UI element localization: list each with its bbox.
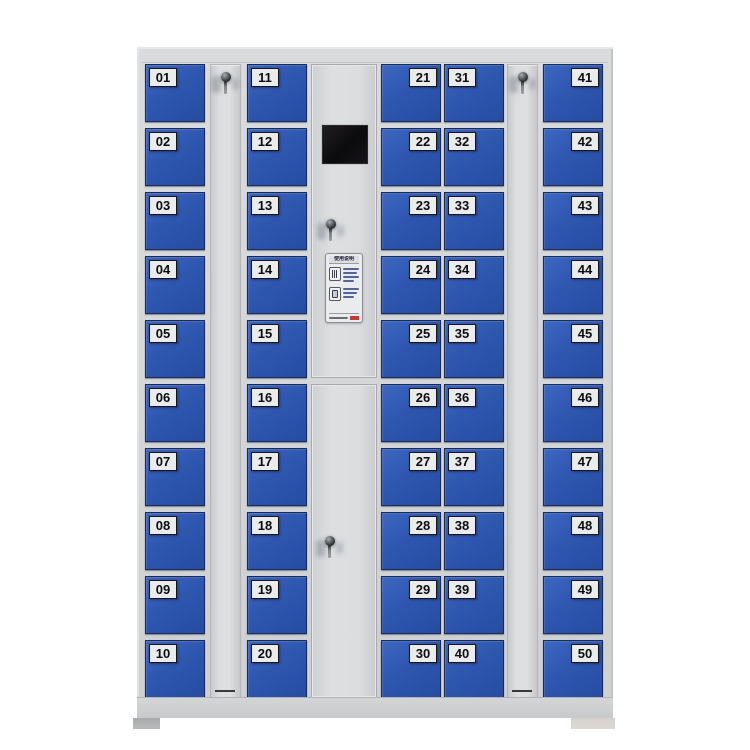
door-number-plate: 17 (251, 452, 279, 471)
door-number-plate: 26 (409, 388, 437, 407)
panel-seam (512, 690, 532, 692)
locker-door-44[interactable]: 44 (543, 256, 603, 314)
door-number-plate: 31 (448, 68, 476, 87)
door-number-plate: 24 (409, 260, 437, 279)
key-shadow (316, 540, 325, 557)
door-number-plate: 12 (251, 132, 279, 151)
product-photo: 0102030405060708091011121314151617181920… (0, 0, 750, 750)
locker-door-12[interactable]: 12 (247, 128, 307, 186)
locker-door-45[interactable]: 45 (543, 320, 603, 378)
instruction-label: 使用说明 (325, 253, 363, 323)
door-number-plate: 47 (571, 452, 599, 471)
door-number-plate: 48 (571, 516, 599, 535)
locker-door-17[interactable]: 17 (247, 448, 307, 506)
door-number-plate: 33 (448, 196, 476, 215)
locker-door-27[interactable]: 27 (381, 448, 441, 506)
side-panel-right-key-lock[interactable] (516, 72, 530, 98)
locker-door-33[interactable]: 33 (444, 192, 504, 250)
locker-door-28[interactable]: 28 (381, 512, 441, 570)
locker-door-24[interactable]: 24 (381, 256, 441, 314)
instruction-label-title: 使用说明 (329, 256, 359, 264)
locker-door-34[interactable]: 34 (444, 256, 504, 314)
door-number-plate: 13 (251, 196, 279, 215)
door-number-plate: 40 (448, 644, 476, 663)
control-screen[interactable] (322, 125, 368, 164)
locker-door-13[interactable]: 13 (247, 192, 307, 250)
card-reader-icon (329, 287, 341, 301)
control-column: 使用说明 (311, 64, 377, 698)
door-number-plate: 28 (409, 516, 437, 535)
locker-door-04[interactable]: 04 (145, 256, 205, 314)
cabinet-foot-right (571, 718, 615, 729)
barcode-icon (329, 267, 341, 281)
cabinet-base (137, 697, 613, 718)
master-key-lock-top[interactable] (324, 219, 338, 245)
col-4: 31323334353637383940 (444, 64, 504, 698)
locker-door-36[interactable]: 36 (444, 384, 504, 442)
locker-door-01[interactable]: 01 (145, 64, 205, 122)
key-shadow (529, 78, 536, 90)
locker-door-30[interactable]: 30 (381, 640, 441, 698)
key-shadow (212, 76, 221, 93)
door-number-plate: 32 (448, 132, 476, 151)
door-number-plate: 37 (448, 452, 476, 471)
control-panel: 使用说明 (311, 64, 377, 378)
locker-cabinet-columns: 0102030405060708091011121314151617181920… (137, 64, 603, 698)
door-number-plate: 04 (149, 260, 177, 279)
locker-door-50[interactable]: 50 (543, 640, 603, 698)
door-number-plate: 46 (571, 388, 599, 407)
door-number-plate: 27 (409, 452, 437, 471)
door-number-plate: 41 (571, 68, 599, 87)
instruction-text (343, 287, 359, 300)
locker-door-40[interactable]: 40 (444, 640, 504, 698)
instruction-step (329, 287, 359, 301)
door-number-plate: 15 (251, 324, 279, 343)
door-number-plate: 29 (409, 580, 437, 599)
locker-door-06[interactable]: 06 (145, 384, 205, 442)
locker-door-20[interactable]: 20 (247, 640, 307, 698)
locker-door-35[interactable]: 35 (444, 320, 504, 378)
locker-door-11[interactable]: 11 (247, 64, 307, 122)
door-number-plate: 21 (409, 68, 437, 87)
master-door[interactable] (311, 384, 377, 698)
cabinet-foot-left (133, 718, 160, 729)
door-number-plate: 20 (251, 644, 279, 663)
door-number-plate: 05 (149, 324, 177, 343)
key-shadow (337, 225, 344, 237)
master-key-lock-bottom[interactable] (323, 536, 337, 562)
door-number-plate: 01 (149, 68, 177, 87)
door-number-plate: 30 (409, 644, 437, 663)
locker-door-07[interactable]: 07 (145, 448, 205, 506)
key-icon (328, 545, 331, 558)
locker-door-08[interactable]: 08 (145, 512, 205, 570)
door-number-plate: 38 (448, 516, 476, 535)
key-icon (224, 81, 227, 94)
door-number-plate: 06 (149, 388, 177, 407)
locker-door-37[interactable]: 37 (444, 448, 504, 506)
door-number-plate: 39 (448, 580, 476, 599)
door-number-plate: 22 (409, 132, 437, 151)
door-number-plate: 02 (149, 132, 177, 151)
locker-door-46[interactable]: 46 (543, 384, 603, 442)
door-number-plate: 03 (149, 196, 177, 215)
door-number-plate: 34 (448, 260, 476, 279)
locker-door-48[interactable]: 48 (543, 512, 603, 570)
locker-door-15[interactable]: 15 (247, 320, 307, 378)
door-number-plate: 49 (571, 580, 599, 599)
key-shadow (336, 542, 343, 554)
door-number-plate: 25 (409, 324, 437, 343)
col-1: 01020304050607080910 (145, 64, 205, 698)
side-panel-left-key-lock[interactable] (219, 72, 233, 98)
instruction-text (343, 267, 359, 284)
door-number-plate: 43 (571, 196, 599, 215)
locker-door-03[interactable]: 03 (145, 192, 205, 250)
door-number-plate: 42 (571, 132, 599, 151)
door-number-plate: 50 (571, 644, 599, 663)
door-number-plate: 36 (448, 388, 476, 407)
door-number-plate: 19 (251, 580, 279, 599)
red-stamp (350, 316, 359, 320)
key-shadow (509, 76, 518, 93)
locker-door-43[interactable]: 43 (543, 192, 603, 250)
locker-door-47[interactable]: 47 (543, 448, 603, 506)
side-panel-left (210, 64, 241, 698)
col-3: 21222324252627282930 (381, 64, 441, 698)
door-number-plate: 07 (149, 452, 177, 471)
locker-door-21[interactable]: 21 (381, 64, 441, 122)
col-2: 11121314151617181920 (247, 64, 307, 698)
door-number-plate: 09 (149, 580, 177, 599)
locker-door-02[interactable]: 02 (145, 128, 205, 186)
door-number-plate: 23 (409, 196, 437, 215)
locker-door-19[interactable]: 19 (247, 576, 307, 634)
instruction-step (329, 267, 359, 284)
locker-door-29[interactable]: 29 (381, 576, 441, 634)
door-number-plate: 11 (251, 68, 279, 87)
door-number-plate: 10 (149, 644, 177, 663)
locker-door-41[interactable]: 41 (543, 64, 603, 122)
locker-door-49[interactable]: 49 (543, 576, 603, 634)
door-number-plate: 44 (571, 260, 599, 279)
col-5: 41424344454647484950 (543, 64, 603, 698)
key-shadow (317, 223, 326, 240)
locker-door-22[interactable]: 22 (381, 128, 441, 186)
locker-door-18[interactable]: 18 (247, 512, 307, 570)
key-icon (329, 228, 332, 241)
locker-door-32[interactable]: 32 (444, 128, 504, 186)
door-number-plate: 08 (149, 516, 177, 535)
locker-door-10[interactable]: 10 (145, 640, 205, 698)
panel-seam (215, 690, 235, 692)
key-shadow (232, 78, 239, 90)
side-panel-right (507, 64, 538, 698)
locker-door-16[interactable]: 16 (247, 384, 307, 442)
footer-text-line (329, 317, 348, 319)
door-number-plate: 14 (251, 260, 279, 279)
locker-door-39[interactable]: 39 (444, 576, 504, 634)
locker-door-25[interactable]: 25 (381, 320, 441, 378)
locker-door-26[interactable]: 26 (381, 384, 441, 442)
door-number-plate: 18 (251, 516, 279, 535)
door-number-plate: 45 (571, 324, 599, 343)
key-icon (521, 81, 524, 94)
locker-door-42[interactable]: 42 (543, 128, 603, 186)
locker-door-31[interactable]: 31 (444, 64, 504, 122)
door-number-plate: 35 (448, 324, 476, 343)
locker-door-38[interactable]: 38 (444, 512, 504, 570)
locker-door-23[interactable]: 23 (381, 192, 441, 250)
locker-cabinet: 0102030405060708091011121314151617181920… (137, 47, 613, 718)
locker-door-05[interactable]: 05 (145, 320, 205, 378)
door-number-plate: 16 (251, 388, 279, 407)
locker-door-14[interactable]: 14 (247, 256, 307, 314)
locker-door-09[interactable]: 09 (145, 576, 205, 634)
instruction-label-footer (329, 313, 359, 320)
